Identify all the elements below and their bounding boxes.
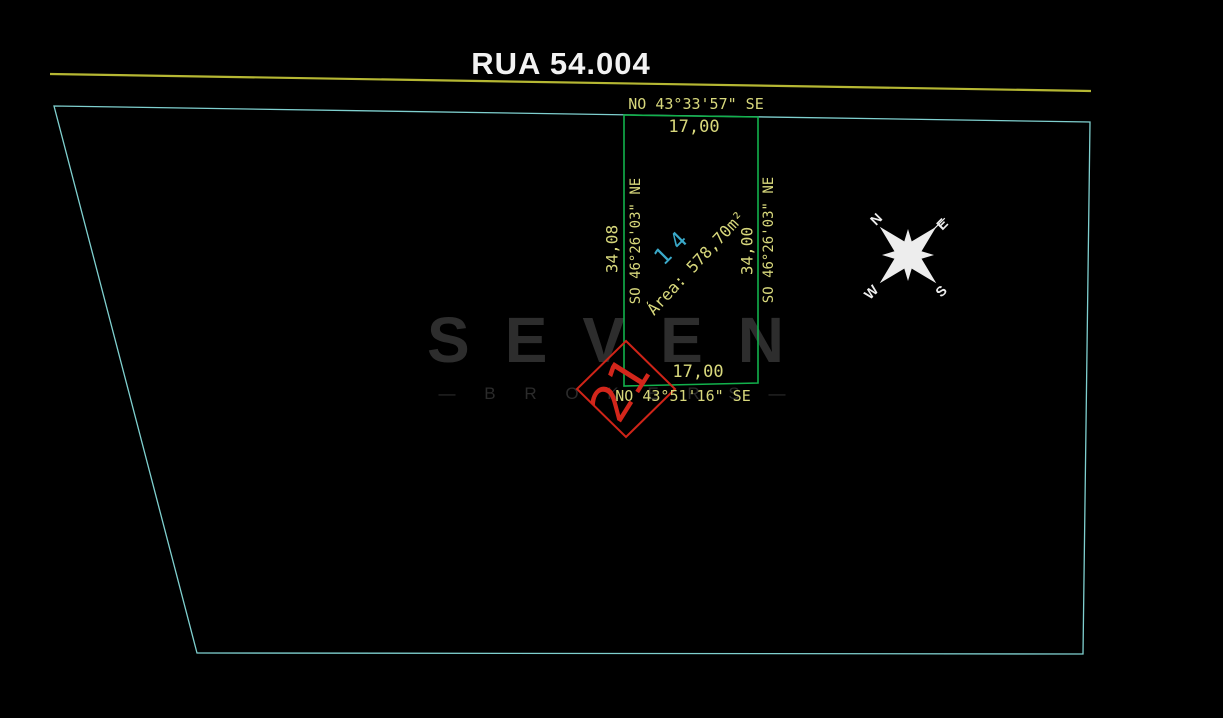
front-length-label: 17,00	[668, 117, 719, 137]
front-bearing-label: NO 43°33'57" SE	[628, 95, 763, 113]
left-bearing-label: SO 46°26'03" NE	[628, 178, 644, 304]
survey-plot-canvas: SEVEN — B R O K E R S — RUA 54.004 NO 43…	[0, 0, 1223, 718]
street-name-label: RUA 54.004	[471, 46, 650, 82]
left-length-label: 34,08	[603, 225, 622, 273]
boundary-polygon	[54, 106, 1090, 654]
right-bearing-label: SO 46°26'03" NE	[761, 177, 777, 303]
right-length-label: 34,00	[738, 227, 757, 275]
back-length-label: 17,00	[672, 362, 723, 382]
